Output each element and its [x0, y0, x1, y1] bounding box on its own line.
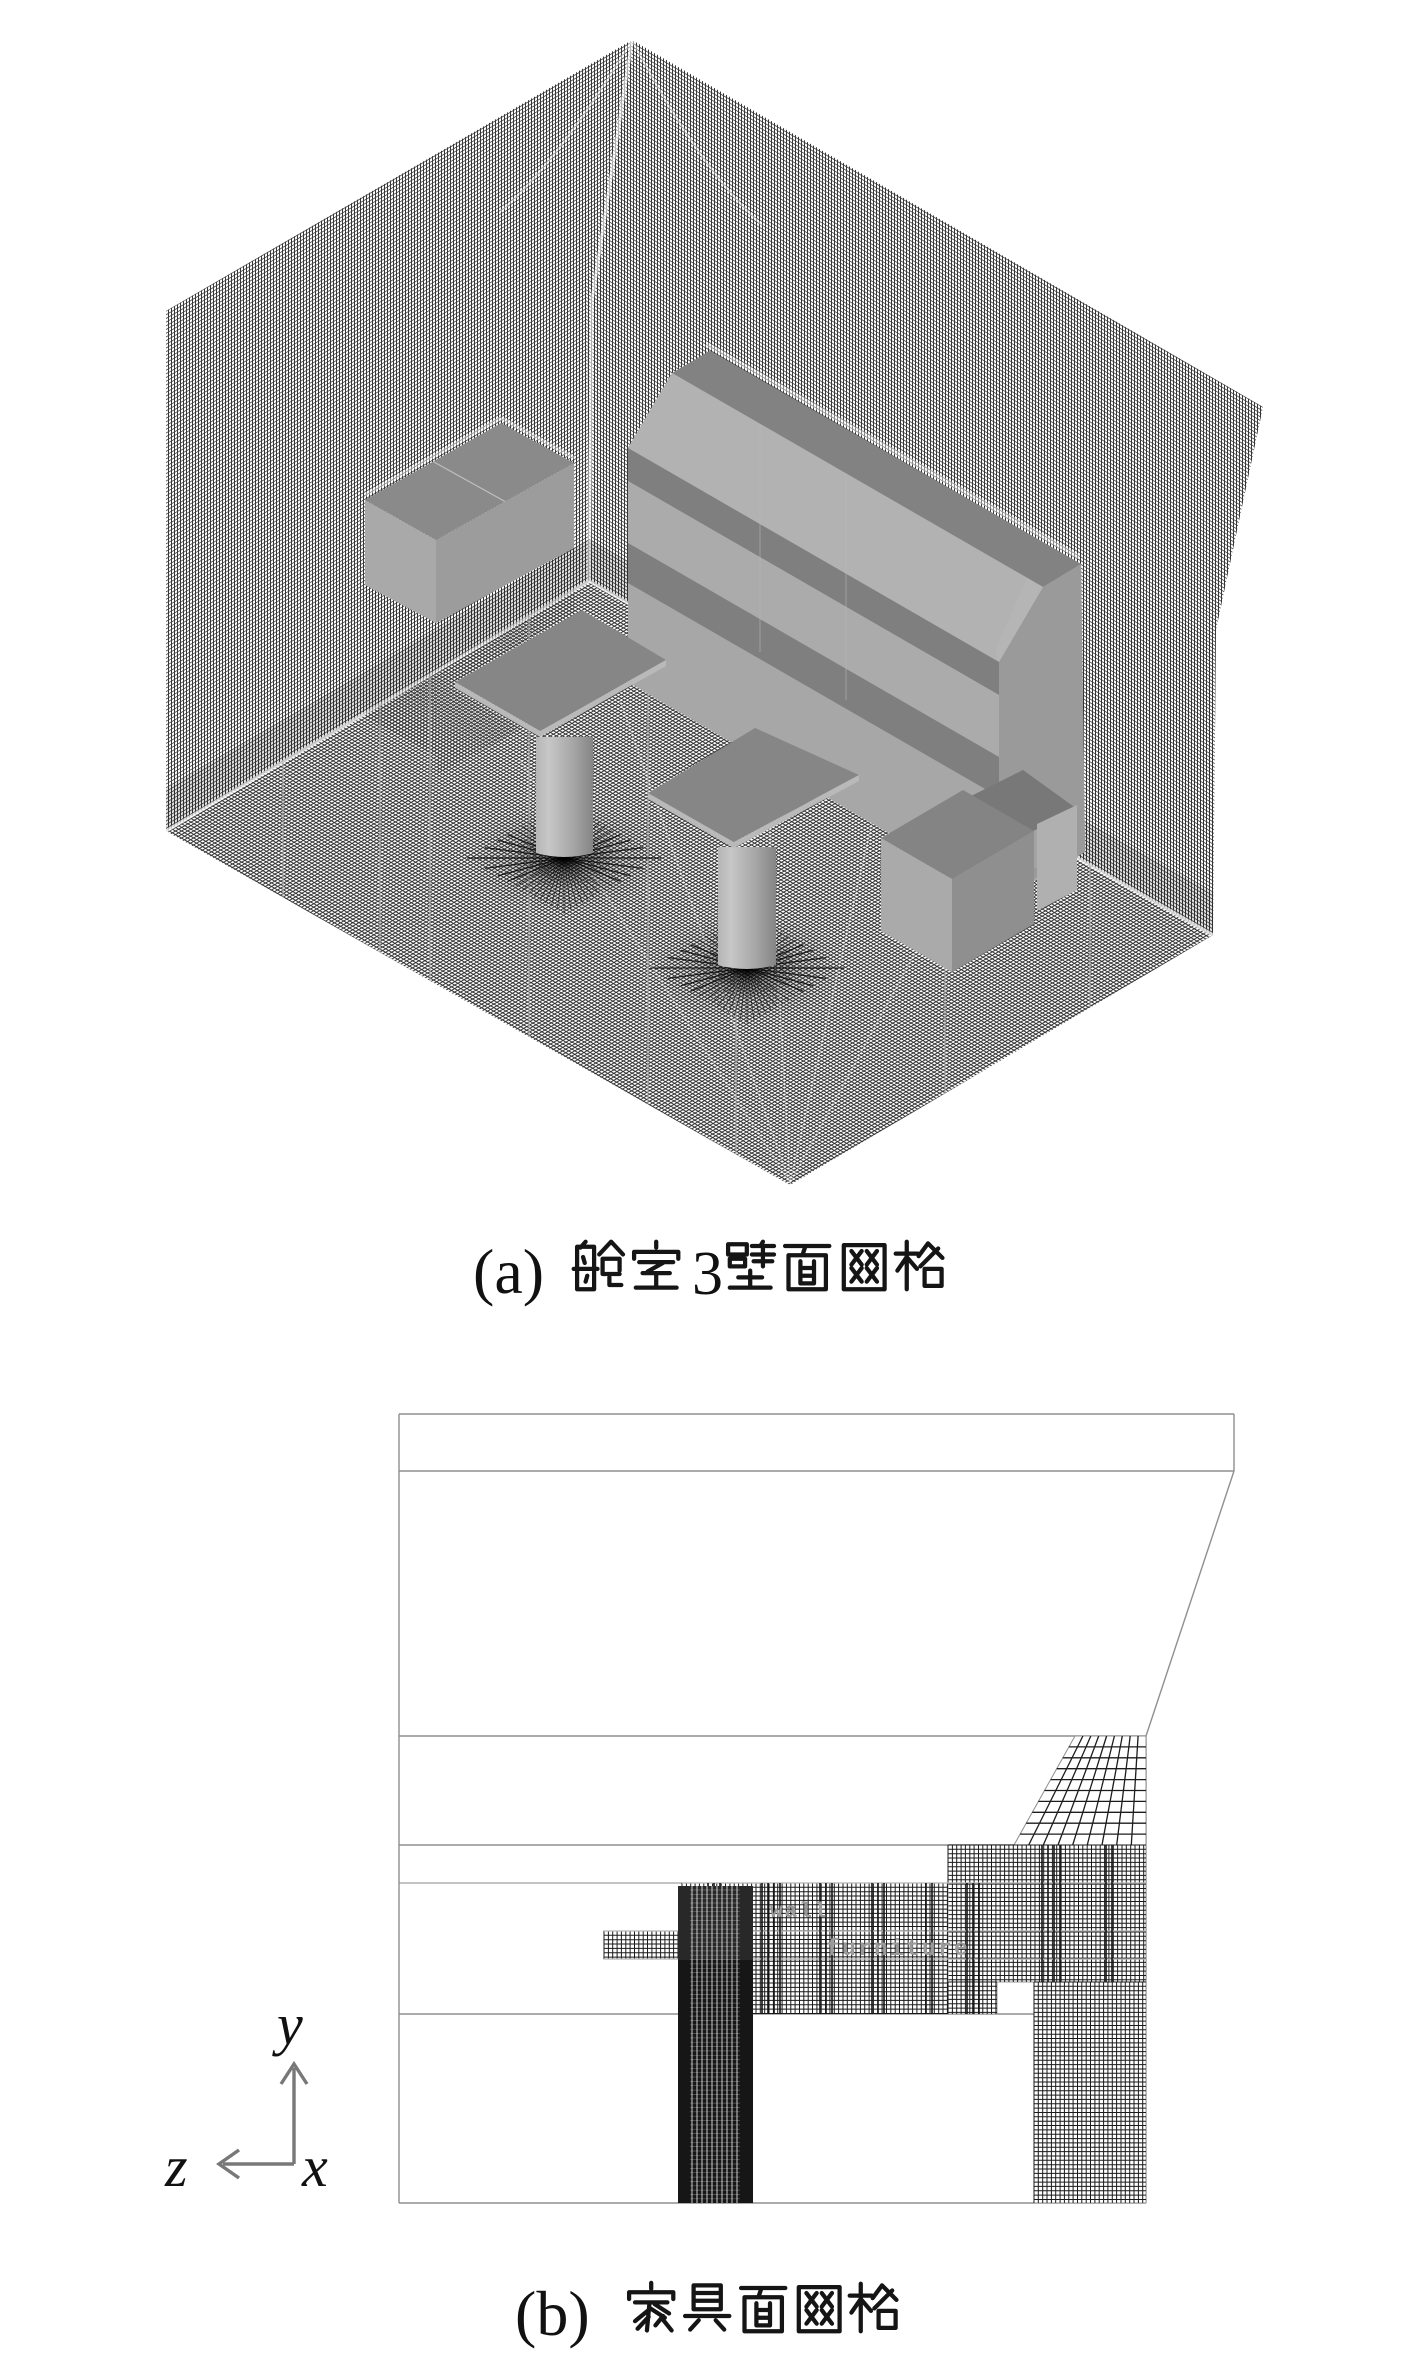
svg-text:z: z [164, 2134, 188, 2199]
svg-text:(a): (a) [473, 1236, 544, 1307]
svg-text:x: x [301, 2134, 328, 2199]
svg-text:furniture: furniture [826, 1936, 970, 1962]
svg-text:3: 3 [692, 1240, 723, 1308]
svg-text:wall: wall [770, 1901, 828, 1924]
svg-text:y: y [272, 1992, 303, 2057]
svg-text:(b): (b) [515, 2278, 590, 2349]
